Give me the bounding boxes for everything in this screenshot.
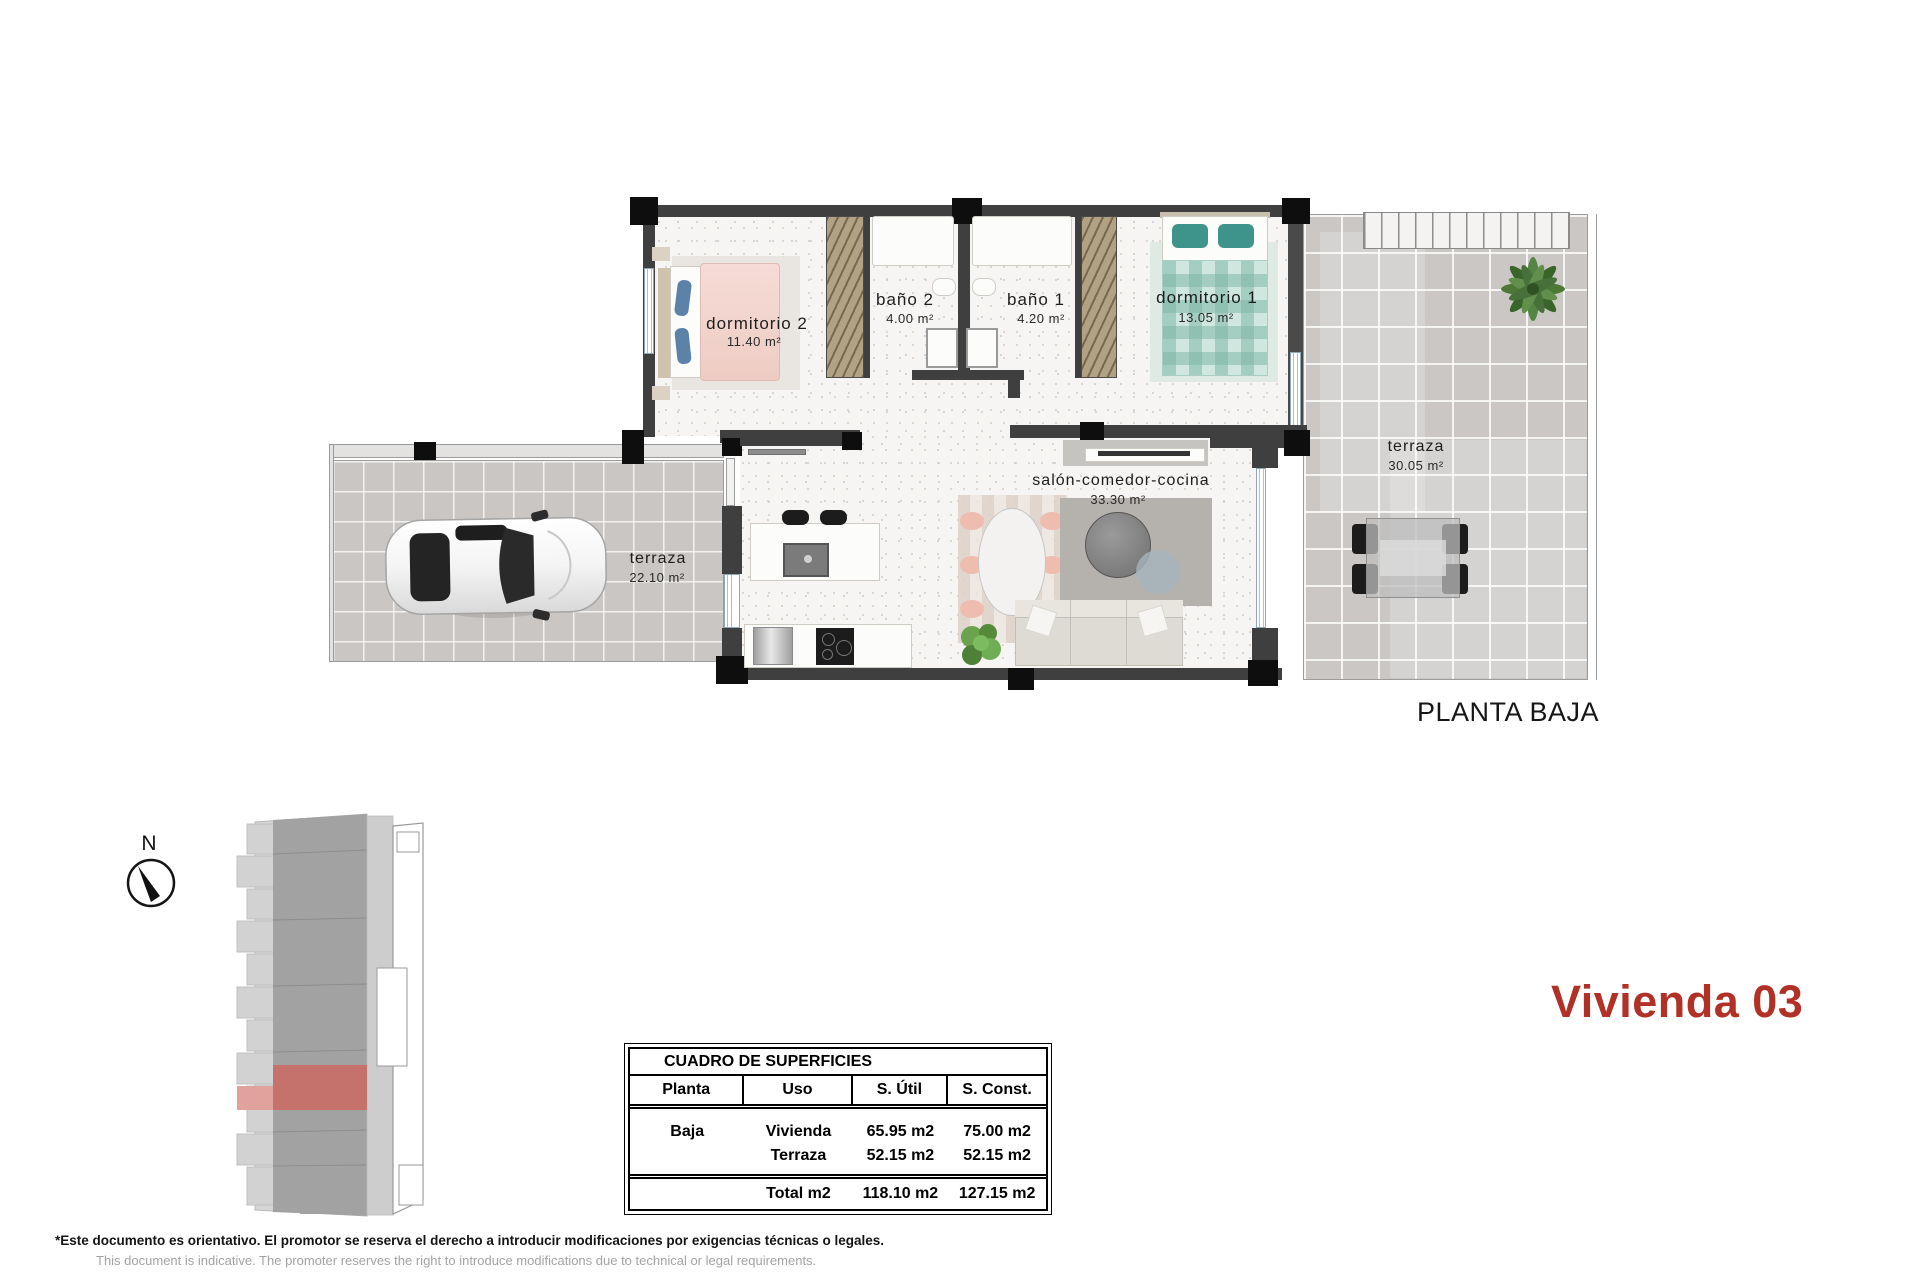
- wall-living-left-a: [722, 506, 742, 574]
- col-header-util: S. Útil: [853, 1076, 949, 1104]
- wall-stub-glass-top: [1252, 440, 1278, 468]
- column-bottomright: [1248, 660, 1278, 686]
- fridge: [753, 627, 793, 665]
- cell-util-0: 65.95 m2: [853, 1123, 949, 1141]
- surfaces-table-total-row: Total m2 118.10 m2 127.15 m2: [630, 1174, 1046, 1209]
- carport-left-wall: [329, 444, 334, 662]
- toilet-bano1: [972, 278, 996, 296]
- car: [381, 508, 611, 624]
- surfaces-table-title: CUADRO DE SUPERFICIES: [630, 1049, 1046, 1076]
- burner-1: [822, 633, 835, 646]
- kitchen-shelf: [748, 449, 806, 455]
- exterior-stairs: [1363, 212, 1570, 249]
- column-topright: [1282, 198, 1310, 224]
- pillow-teal-1: [1172, 224, 1208, 248]
- indoor-plant: [950, 615, 1010, 675]
- room-area-dormitorio1: 13.05 m²: [1178, 310, 1233, 325]
- compass-north-label: N: [141, 832, 156, 856]
- tv: [1098, 451, 1190, 456]
- surfaces-table: CUADRO DE SUPERFICIES Planta Uso S. Útil…: [624, 1043, 1052, 1215]
- room-area-terraza-right: 30.05 m²: [1388, 458, 1443, 473]
- terrace-table-glass: [1380, 540, 1446, 576]
- col-header-planta: Planta: [630, 1076, 744, 1104]
- room-area-bano2: 4.00 m²: [886, 311, 934, 326]
- sink-faucet: [804, 555, 812, 563]
- toilet-bano2: [932, 278, 956, 296]
- pillow-teal-2: [1218, 224, 1254, 248]
- window-dormitorio1: [1290, 352, 1301, 430]
- cell-total-const: 127.15 m2: [948, 1185, 1046, 1203]
- column-hall-left: [842, 432, 862, 450]
- site-highlight-unit: [273, 1065, 367, 1110]
- palm-plant: [1492, 250, 1574, 328]
- cell-uso-0: Vivienda: [744, 1123, 852, 1141]
- column-terrace-junction: [1284, 430, 1310, 456]
- disclaimer-es: *Este documento es orientativo. El promo…: [55, 1233, 884, 1248]
- window-dormitorio2: [644, 268, 654, 354]
- cell-uso-1: Terraza: [744, 1147, 852, 1165]
- table-row: Baja Vivienda 65.95 m2 75.00 m2: [630, 1123, 1046, 1141]
- room-area-terraza-left: 22.10 m²: [629, 570, 684, 585]
- surfaces-table-header: Planta Uso S. Útil S. Const.: [630, 1076, 1046, 1109]
- disclaimer-en: This document is indicative. The promote…: [96, 1253, 816, 1268]
- room-label-terraza-left: terraza: [630, 550, 687, 568]
- wardrobe-dormitorio2: [826, 216, 864, 378]
- cell-util-1: 52.15 m2: [853, 1147, 949, 1165]
- shower-bano1: [966, 328, 998, 368]
- column-topleft: [630, 197, 658, 225]
- plan-sheet: dormitorio 2 11.40 m² baño 2 4.00 m² bañ…: [0, 0, 1920, 1280]
- wall-wardrobe2-bano2: [864, 212, 870, 378]
- wall-banos-stub: [1008, 370, 1020, 398]
- burner-3: [836, 640, 852, 656]
- col-header-uso: Uso: [744, 1076, 852, 1104]
- bar-stool-2: [820, 510, 847, 525]
- column-carport-house: [622, 430, 644, 464]
- column-hall-right: [1080, 422, 1104, 442]
- room-label-bano1: baño 1: [1007, 290, 1065, 310]
- side-table: [1136, 550, 1180, 594]
- cell-planta-0: Baja: [630, 1123, 744, 1141]
- room-area-salon: 33.30 m²: [1090, 492, 1145, 507]
- terrace-outer-line: [1588, 214, 1597, 680]
- room-label-salon: salón-comedor-cocina: [1032, 472, 1209, 490]
- column-bottomcenter: [1008, 668, 1034, 690]
- cell-const-0: 75.00 m2: [948, 1123, 1046, 1141]
- carport-parapet: [332, 444, 724, 458]
- room-label-terraza-right: terraza: [1388, 438, 1445, 456]
- burner-2: [822, 649, 833, 660]
- col-header-const: S. Const.: [948, 1076, 1046, 1104]
- dining-chair-1: [960, 512, 984, 530]
- wardrobe-dormitorio1: [1081, 216, 1117, 378]
- room-label-bano2: baño 2: [876, 290, 934, 310]
- vanity-bano1: [972, 216, 1072, 266]
- floor-title: PLANTA BAJA: [1417, 697, 1599, 728]
- glass-door-carport: [724, 574, 740, 628]
- cell-planta-1: [630, 1147, 744, 1165]
- cell-const-1: 52.15 m2: [948, 1147, 1046, 1165]
- shower-bano2: [926, 328, 958, 368]
- column-entry: [722, 438, 742, 456]
- room-label-dormitorio1: dormitorio 1: [1156, 288, 1258, 308]
- site-plan: [225, 810, 425, 1225]
- table-row: Terraza 52.15 m2 52.15 m2: [630, 1147, 1046, 1165]
- entry-door-leaf: [726, 458, 735, 506]
- glass-door-terrace: [1256, 468, 1266, 628]
- room-label-dormitorio2: dormitorio 2: [706, 314, 808, 334]
- bar-stool-1: [782, 510, 809, 525]
- sofa-seam-2: [1126, 600, 1127, 666]
- room-area-bano1: 4.20 m²: [1017, 311, 1065, 326]
- nightstand-1: [652, 247, 670, 261]
- compass-icon: [124, 856, 178, 910]
- surfaces-table-body: Baja Vivienda 65.95 m2 75.00 m2 Terraza …: [630, 1109, 1046, 1174]
- cell-total-label: Total m2: [744, 1185, 852, 1203]
- room-area-dormitorio2: 11.40 m²: [727, 334, 781, 349]
- cell-total-util: 118.10 m2: [853, 1185, 949, 1203]
- unit-title: Vivienda 03: [1551, 976, 1803, 1028]
- column-carport: [414, 442, 436, 460]
- nightstand-2: [652, 386, 670, 400]
- sofa-seam-1: [1070, 600, 1071, 666]
- vanity-bano2: [872, 216, 954, 266]
